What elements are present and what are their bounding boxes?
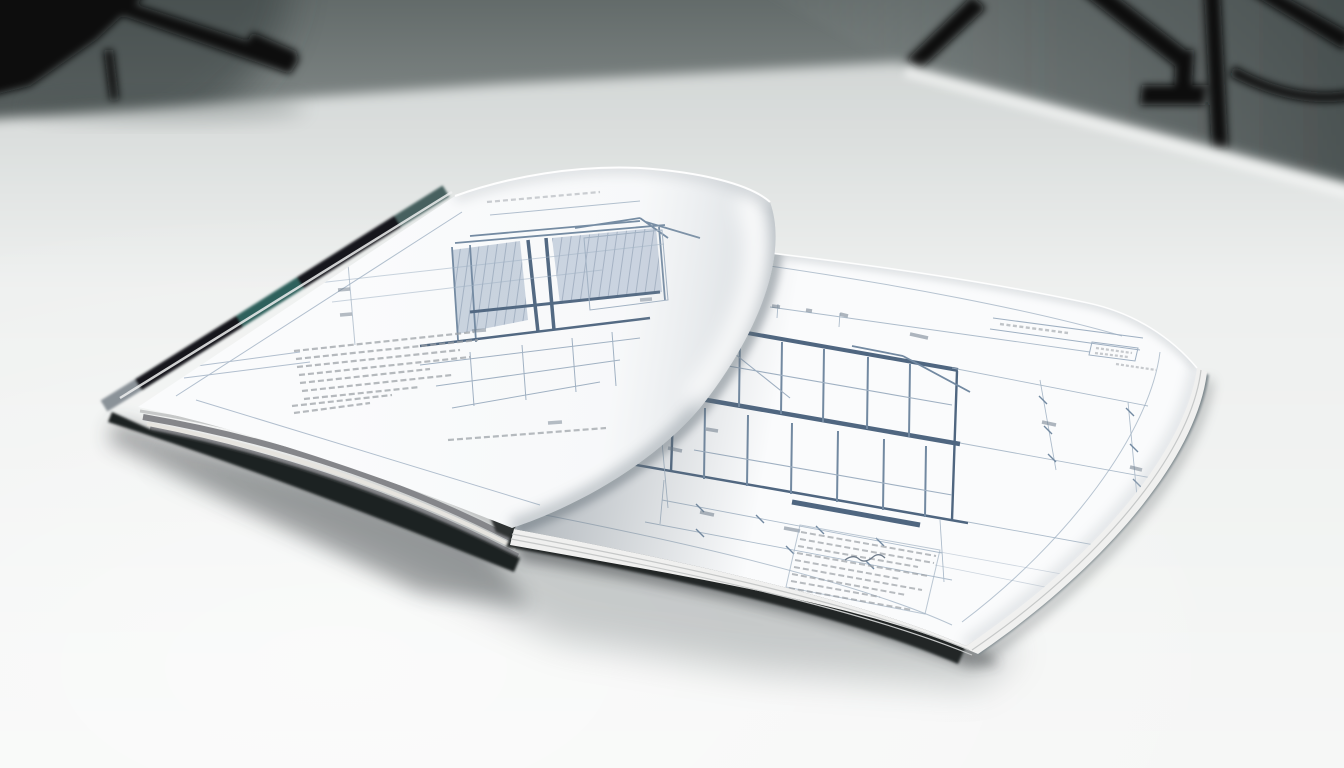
tripod-shadow [25, 95, 305, 121]
scene-canvas [0, 0, 1344, 768]
photo-scene [0, 0, 1344, 768]
